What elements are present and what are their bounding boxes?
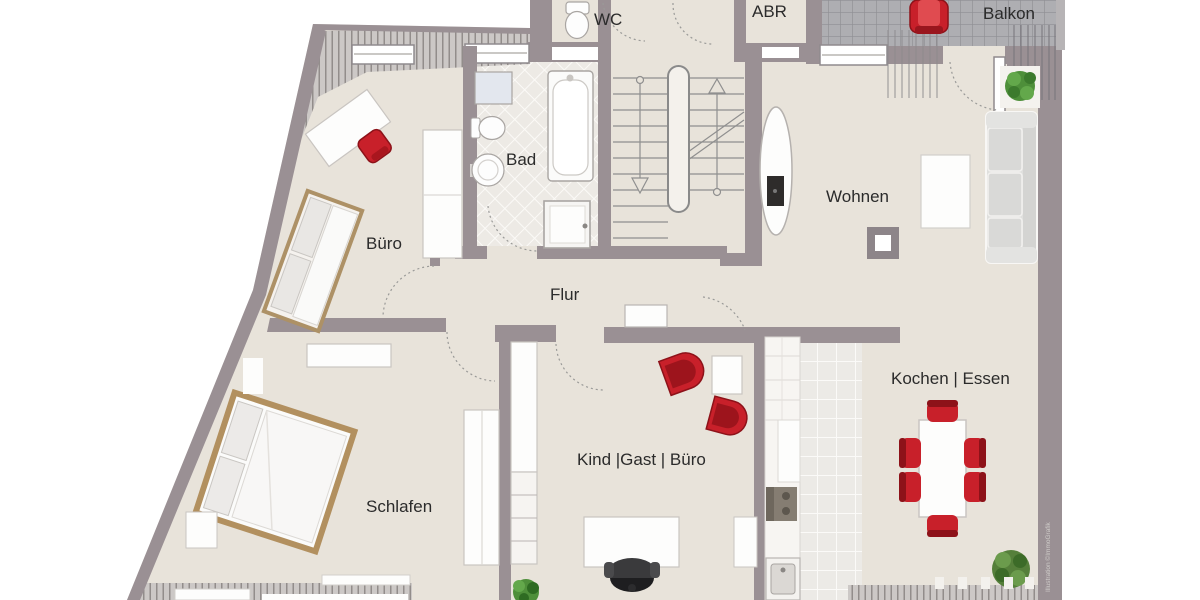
svg-text:Wohnen: Wohnen — [826, 187, 889, 206]
svg-text:Kind |Gast | Büro: Kind |Gast | Büro — [577, 450, 706, 469]
svg-text:Balkon: Balkon — [983, 4, 1035, 23]
svg-text:Illustration ©ImmoGrafik: Illustration ©ImmoGrafik — [1044, 521, 1052, 592]
svg-text:Bad: Bad — [506, 150, 536, 169]
svg-text:Büro: Büro — [366, 234, 402, 253]
svg-text:WC: WC — [594, 10, 622, 29]
svg-text:Schlafen: Schlafen — [366, 497, 432, 516]
svg-text:Flur: Flur — [550, 285, 580, 304]
svg-text:Kochen | Essen: Kochen | Essen — [891, 369, 1010, 388]
svg-text:ABR: ABR — [752, 2, 787, 21]
